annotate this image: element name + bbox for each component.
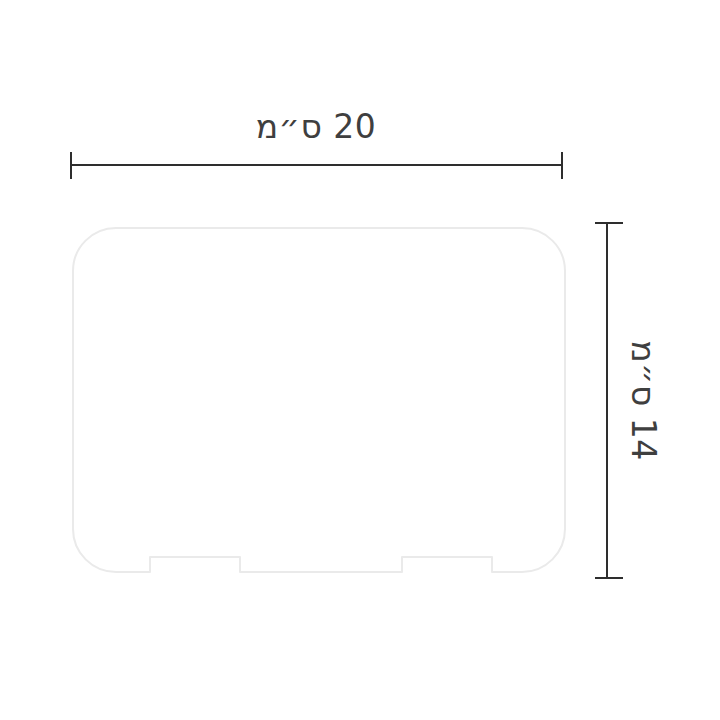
width-dimension-tick-right bbox=[561, 152, 563, 179]
width-dimension-line bbox=[71, 164, 563, 166]
width-dimension-label: 20 ס״מ bbox=[196, 108, 436, 146]
height-dimension-tick-bottom bbox=[595, 577, 623, 579]
width-dimension-tick-left bbox=[70, 152, 72, 179]
product-outline-shape bbox=[72, 227, 566, 573]
tray-outline-path bbox=[73, 228, 565, 572]
height-dimension-label: 14 ס״מ bbox=[626, 321, 661, 481]
height-dimension-line bbox=[606, 223, 608, 579]
diagram-canvas: 20 ס״מ 14 ס״מ bbox=[0, 0, 720, 720]
height-dimension-tick-top bbox=[595, 222, 623, 224]
